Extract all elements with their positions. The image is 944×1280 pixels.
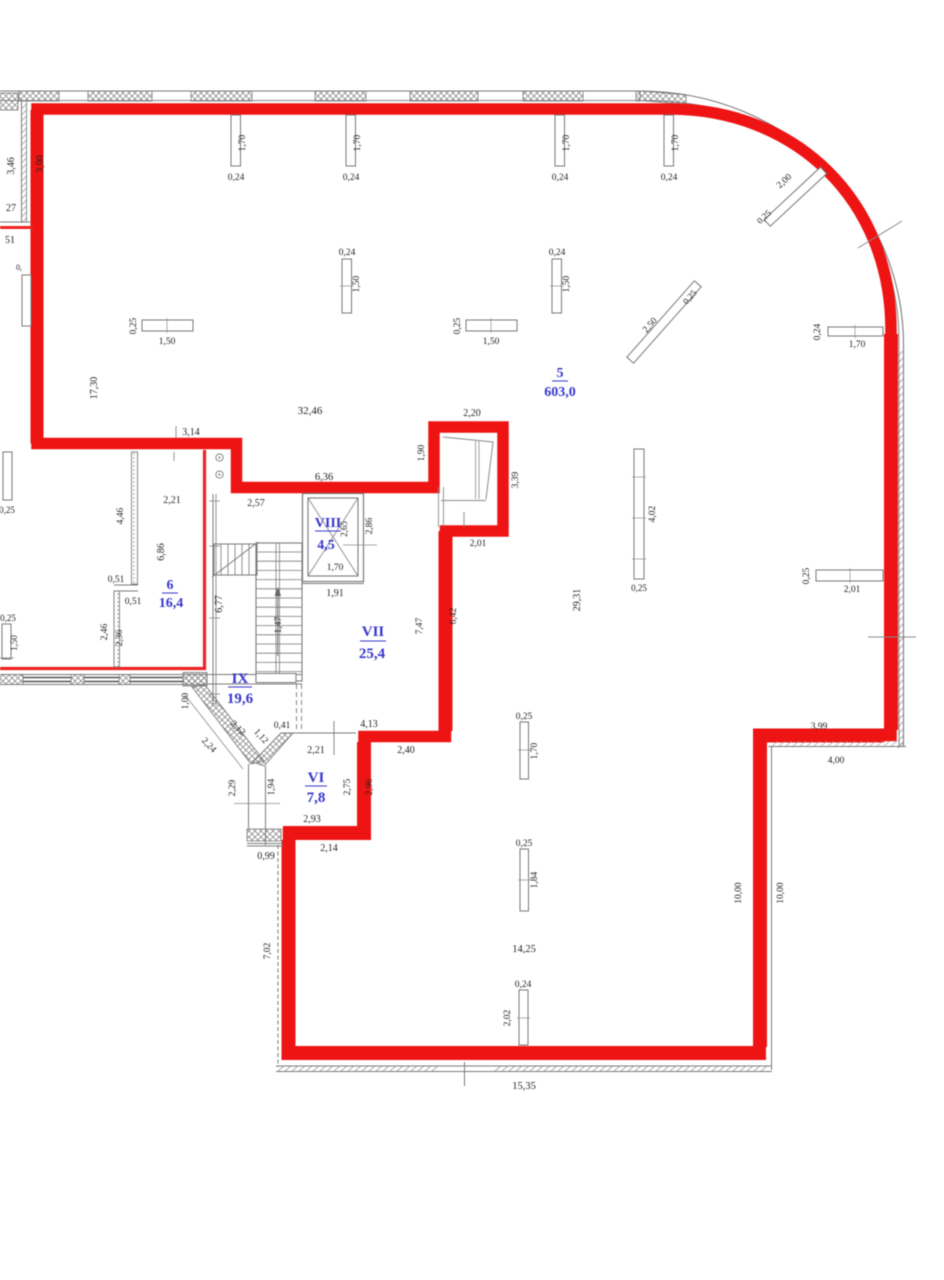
svg-text:2,01: 2,01 bbox=[844, 585, 861, 595]
svg-text:6,42: 6,42 bbox=[449, 607, 459, 624]
svg-text:0,24: 0,24 bbox=[549, 248, 566, 258]
svg-text:4,5: 4,5 bbox=[317, 538, 335, 553]
svg-text:2,40: 2,40 bbox=[397, 745, 415, 756]
svg-text:6: 6 bbox=[167, 578, 174, 593]
svg-text:7,02: 7,02 bbox=[263, 942, 273, 959]
svg-text:0,24: 0,24 bbox=[515, 980, 532, 990]
svg-text:7,47: 7,47 bbox=[415, 617, 425, 634]
svg-text:29,31: 29,31 bbox=[572, 589, 583, 612]
svg-text:27: 27 bbox=[6, 203, 16, 214]
svg-text:1,70: 1,70 bbox=[238, 134, 248, 151]
svg-text:4,00: 4,00 bbox=[828, 756, 845, 766]
svg-text:0,: 0, bbox=[16, 263, 22, 272]
svg-text:17,30: 17,30 bbox=[89, 377, 100, 400]
svg-text:2,01: 2,01 bbox=[470, 539, 487, 549]
svg-text:1,91: 1,91 bbox=[326, 588, 344, 599]
svg-text:0,99: 0,99 bbox=[257, 851, 275, 862]
svg-text:4,02: 4,02 bbox=[648, 505, 658, 522]
svg-text:6,86: 6,86 bbox=[156, 543, 167, 561]
svg-text:5: 5 bbox=[557, 366, 564, 381]
svg-text:1,70: 1,70 bbox=[671, 134, 681, 151]
svg-text:3,00: 3,00 bbox=[35, 155, 46, 173]
svg-text:1,50: 1,50 bbox=[562, 275, 572, 292]
svg-text:15,35: 15,35 bbox=[512, 1081, 536, 1092]
svg-text:4,46: 4,46 bbox=[116, 507, 126, 524]
svg-text:1,94: 1,94 bbox=[267, 778, 277, 795]
svg-text:0,24: 0,24 bbox=[813, 323, 823, 340]
svg-text:1,84: 1,84 bbox=[530, 871, 540, 888]
svg-text:0,24: 0,24 bbox=[339, 248, 356, 258]
svg-text:16,4: 16,4 bbox=[159, 596, 184, 611]
svg-text:19,6: 19,6 bbox=[227, 691, 254, 707]
svg-text:2,14: 2,14 bbox=[320, 843, 338, 854]
svg-text:6,77: 6,77 bbox=[214, 595, 225, 613]
svg-text:VII: VII bbox=[362, 624, 385, 640]
svg-text:6,36: 6,36 bbox=[315, 472, 333, 483]
svg-text:7,8: 7,8 bbox=[307, 790, 326, 806]
svg-text:2,21: 2,21 bbox=[163, 495, 181, 506]
svg-text:2,02: 2,02 bbox=[503, 1009, 513, 1026]
svg-text:2,75: 2,75 bbox=[343, 778, 353, 795]
svg-text:0,25: 0,25 bbox=[516, 712, 533, 722]
svg-text:0,24: 0,24 bbox=[661, 173, 678, 183]
svg-text:1,70: 1,70 bbox=[353, 134, 363, 151]
svg-text:603,0: 603,0 bbox=[544, 385, 576, 400]
svg-text:2,46: 2,46 bbox=[100, 623, 110, 640]
svg-text:0,25: 0,25 bbox=[0, 505, 15, 515]
svg-text:1,00: 1,00 bbox=[181, 692, 191, 709]
svg-text:1,90: 1,90 bbox=[417, 444, 427, 461]
svg-text:0,51: 0,51 bbox=[125, 597, 142, 607]
svg-text:2,86: 2,86 bbox=[365, 517, 375, 534]
svg-text:1,50: 1,50 bbox=[9, 635, 19, 651]
svg-text:3,14: 3,14 bbox=[182, 427, 200, 438]
svg-text:0,25: 0,25 bbox=[631, 583, 647, 593]
svg-text:3,46: 3,46 bbox=[6, 157, 17, 175]
svg-text:0,25: 0,25 bbox=[129, 317, 139, 334]
svg-text:3,99: 3,99 bbox=[811, 722, 828, 732]
svg-text:0,24: 0,24 bbox=[552, 173, 569, 183]
svg-text:0,51: 0,51 bbox=[108, 575, 125, 585]
svg-text:0,25: 0,25 bbox=[802, 567, 812, 584]
svg-text:2,93: 2,93 bbox=[303, 814, 321, 825]
svg-text:10,00: 10,00 bbox=[776, 882, 786, 904]
svg-text:32,46: 32,46 bbox=[298, 405, 323, 417]
svg-text:25,4: 25,4 bbox=[359, 646, 386, 662]
svg-text:1,70: 1,70 bbox=[562, 134, 572, 151]
svg-text:2,96: 2,96 bbox=[365, 778, 375, 795]
svg-text:2,20: 2,20 bbox=[463, 408, 481, 419]
svg-text:0,24: 0,24 bbox=[343, 173, 360, 183]
svg-text:1,50: 1,50 bbox=[483, 337, 500, 347]
svg-text:4,13: 4,13 bbox=[360, 719, 378, 730]
svg-text:51: 51 bbox=[5, 235, 15, 246]
svg-text:14,25: 14,25 bbox=[512, 944, 536, 955]
svg-text:3,39: 3,39 bbox=[511, 471, 521, 488]
svg-text:1,70: 1,70 bbox=[849, 340, 866, 350]
svg-text:0,25: 0,25 bbox=[0, 613, 16, 623]
svg-text:VIII: VIII bbox=[315, 516, 341, 531]
svg-text:0,25: 0,25 bbox=[516, 839, 533, 849]
svg-text:0,41: 0,41 bbox=[274, 721, 291, 731]
svg-text:1,70: 1,70 bbox=[327, 563, 344, 573]
svg-text:1,50: 1,50 bbox=[352, 275, 362, 292]
svg-text:2,21: 2,21 bbox=[307, 745, 325, 756]
svg-text:IX: IX bbox=[232, 671, 249, 687]
svg-text:2,36: 2,36 bbox=[115, 629, 125, 646]
svg-text:0,25: 0,25 bbox=[453, 317, 463, 334]
svg-text:0,24: 0,24 bbox=[228, 173, 245, 183]
svg-text:10,00: 10,00 bbox=[734, 882, 744, 904]
svg-text:2,57: 2,57 bbox=[247, 498, 265, 509]
svg-text:2,29: 2,29 bbox=[228, 779, 238, 796]
svg-text:1,70: 1,70 bbox=[530, 742, 540, 759]
svg-text:1,50: 1,50 bbox=[159, 337, 176, 347]
svg-text:1,47: 1,47 bbox=[274, 616, 284, 633]
svg-text:VI: VI bbox=[308, 770, 325, 786]
